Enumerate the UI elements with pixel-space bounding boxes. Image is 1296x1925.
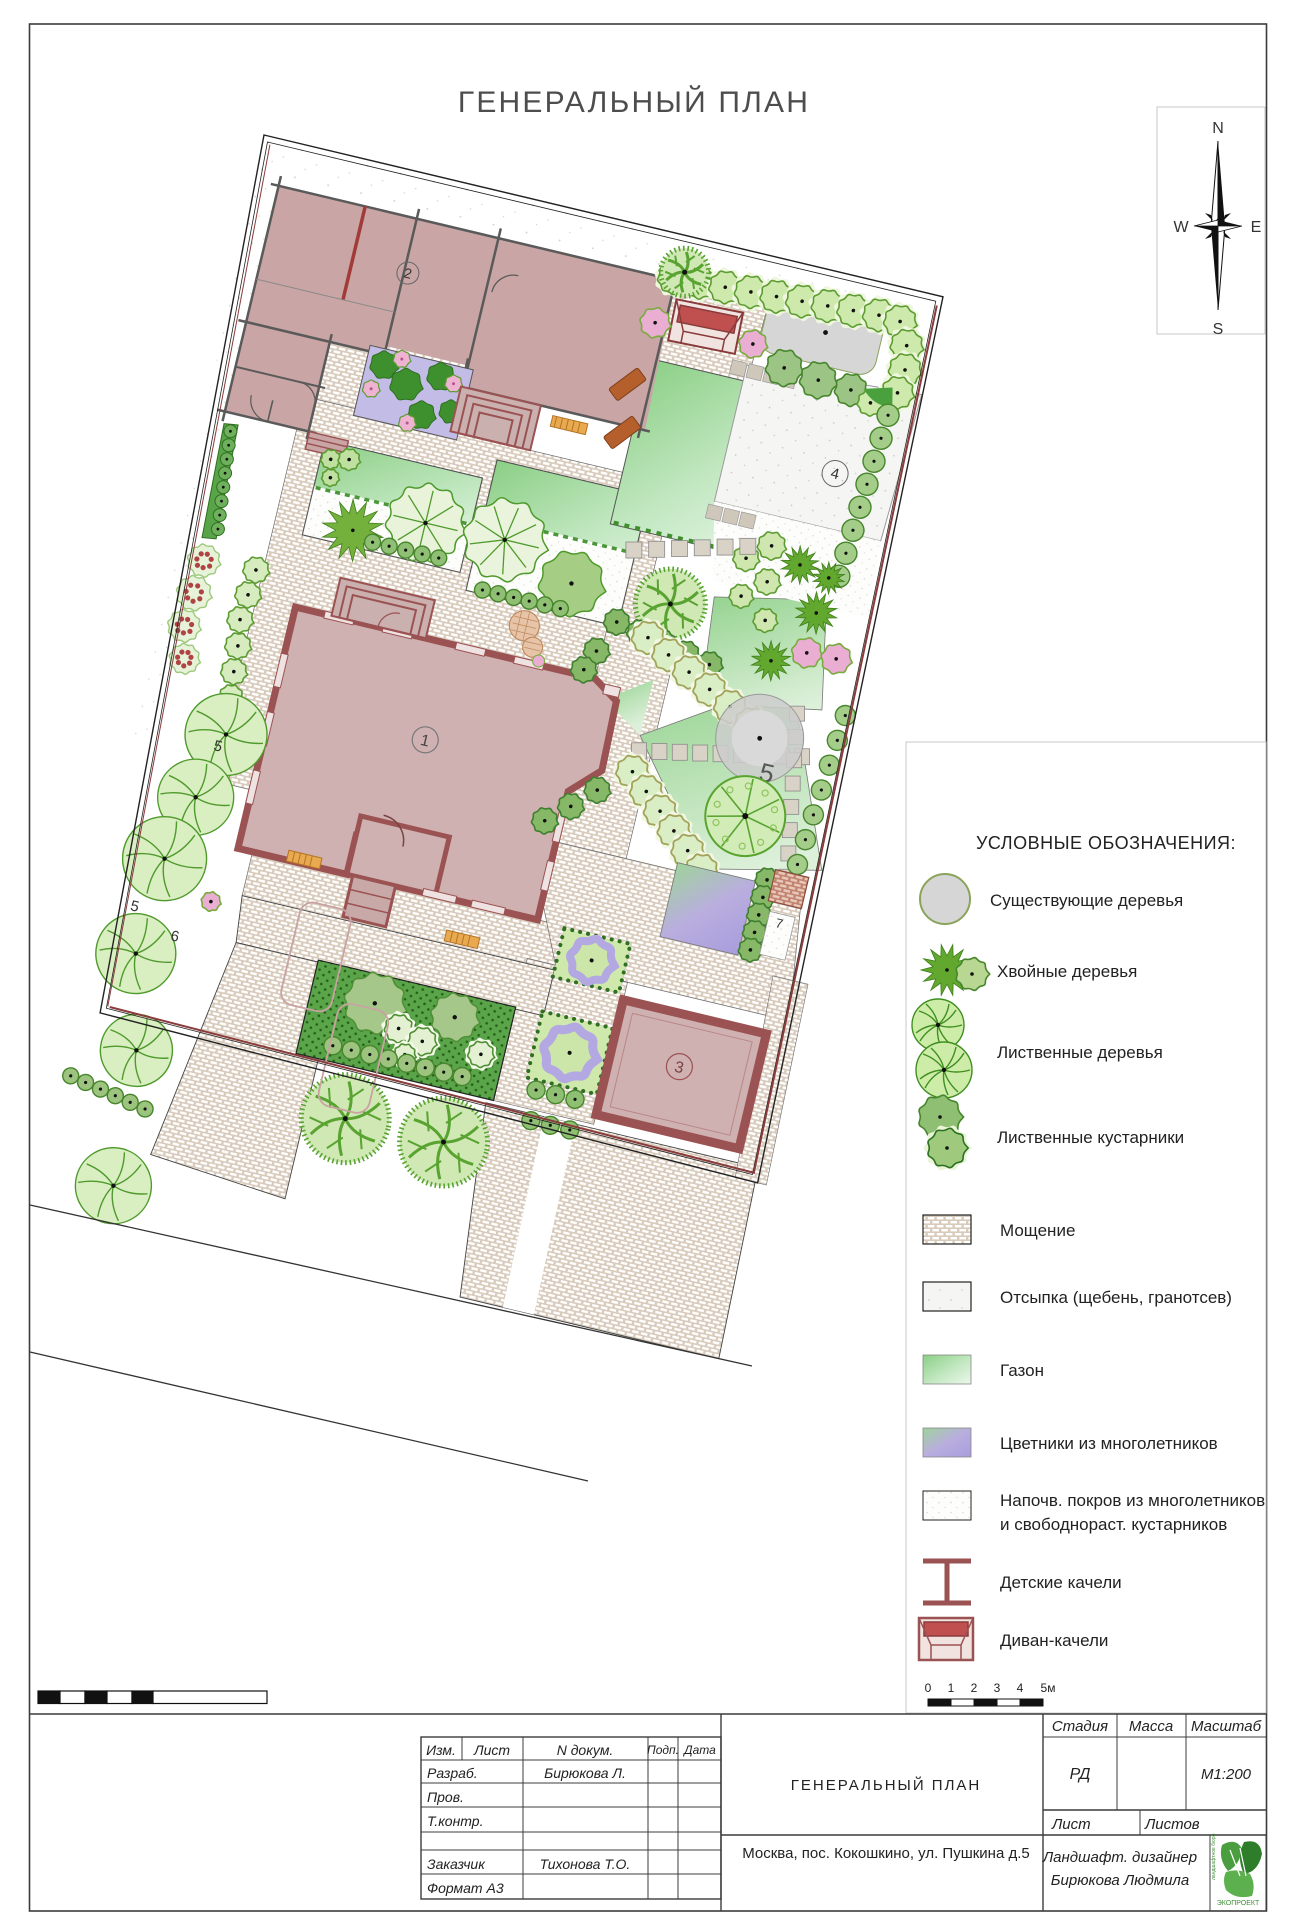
svg-text:Газон: Газон (1000, 1361, 1044, 1380)
svg-text:Подп.: Подп. (647, 1743, 679, 1757)
svg-text:Изм.: Изм. (426, 1742, 456, 1758)
svg-text:Диван-качели: Диван-качели (1000, 1631, 1108, 1650)
svg-text:Пров.: Пров. (427, 1789, 464, 1805)
svg-text:Напочв. покров из многолетнико: Напочв. покров из многолетников (1000, 1491, 1265, 1510)
svg-text:ГЕНЕРАЛЬНЫЙ ПЛАН: ГЕНЕРАЛЬНЫЙ ПЛАН (791, 1776, 982, 1794)
svg-text:Хвойные деревья: Хвойные деревья (997, 962, 1137, 981)
svg-text:3: 3 (994, 1681, 1001, 1695)
svg-text:E: E (1251, 219, 1262, 236)
svg-text:М1:200: М1:200 (1201, 1766, 1252, 1783)
svg-text:Существующие деревья: Существующие деревья (990, 891, 1183, 910)
svg-text:Разраб.: Разраб. (427, 1765, 478, 1781)
svg-text:Москва, пос. Кокошкино, ул. Пу: Москва, пос. Кокошкино, ул. Пушкина д.5 (742, 1845, 1030, 1862)
svg-text:4: 4 (1017, 1681, 1024, 1695)
svg-text:Отсыпка (щебень, гранотсев): Отсыпка (щебень, гранотсев) (1000, 1288, 1232, 1307)
svg-text:Лист: Лист (1051, 1816, 1091, 1833)
svg-text:УСЛОВНЫЕ ОБОЗНАЧЕНИЯ:: УСЛОВНЫЕ ОБОЗНАЧЕНИЯ: (976, 833, 1236, 853)
svg-text:Лиственные деревья: Лиственные деревья (997, 1043, 1163, 1062)
svg-text:Бирюкова Людмила: Бирюкова Людмила (1051, 1872, 1189, 1889)
svg-text:ландшафтное бюро: ландшафтное бюро (1211, 1833, 1217, 1880)
svg-text:Листов: Листов (1144, 1816, 1200, 1833)
svg-text:Цветники из многолетников: Цветники из многолетников (1000, 1434, 1218, 1453)
svg-text:Масштаб: Масштаб (1191, 1718, 1262, 1735)
svg-text:РД: РД (1070, 1766, 1091, 1783)
svg-text:2: 2 (971, 1681, 978, 1695)
svg-text:Заказчик: Заказчик (427, 1856, 486, 1872)
svg-text:1: 1 (948, 1681, 955, 1695)
svg-text:Детские качели: Детские качели (1000, 1573, 1122, 1592)
svg-text:Стадия: Стадия (1052, 1718, 1108, 1735)
svg-text:Лиственные кустарники: Лиственные кустарники (997, 1128, 1184, 1147)
svg-text:0: 0 (925, 1681, 932, 1695)
svg-text:Лист: Лист (473, 1742, 510, 1758)
svg-text:N: N (1212, 120, 1224, 137)
svg-text:ЭКОПРОЕКТ: ЭКОПРОЕКТ (1217, 1900, 1260, 1907)
svg-text:S: S (1213, 321, 1224, 338)
svg-text:Тихонова Т.О.: Тихонова Т.О. (540, 1856, 631, 1872)
svg-text:Формат А3: Формат А3 (427, 1880, 504, 1896)
svg-text:W: W (1173, 219, 1189, 236)
svg-text:Масса: Масса (1129, 1718, 1173, 1735)
svg-text:и свободнораст. кустарников: и свободнораст. кустарников (1000, 1515, 1227, 1534)
svg-text:N докум.: N докум. (557, 1742, 614, 1758)
svg-text:Бирюкова Л.: Бирюкова Л. (544, 1765, 626, 1781)
svg-text:Т.контр.: Т.контр. (427, 1813, 483, 1829)
svg-text:Мощение: Мощение (1000, 1221, 1075, 1240)
svg-text:5м: 5м (1041, 1681, 1056, 1695)
svg-text:Дата: Дата (682, 1743, 716, 1757)
svg-text:ГЕНЕРАЛЬНЫЙ ПЛАН: ГЕНЕРАЛЬНЫЙ ПЛАН (458, 85, 810, 119)
svg-text:Ландшафт. дизайнер: Ландшафт. дизайнер (1042, 1849, 1197, 1866)
